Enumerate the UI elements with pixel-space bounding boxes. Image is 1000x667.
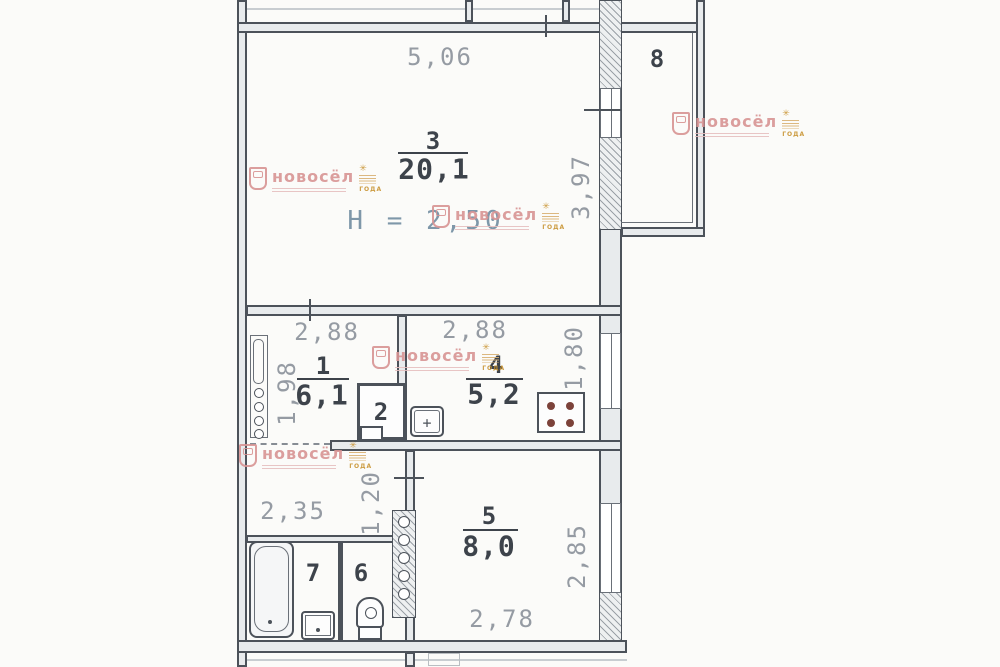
novosel-watermark: новосёл ✳ ГОДА [672,112,805,139]
balcony-wall-bottom [621,227,705,237]
kitchen-window [600,333,621,409]
washbasin-inner [305,615,331,636]
award-star-icon: ✳ [542,203,550,212]
novosel-brand-text: новосёл [262,444,344,463]
novosel-tagline-lines [272,188,346,194]
hall-closet-door [253,339,264,384]
washbasin-drain [316,628,320,632]
room7-number: 7 [306,559,320,587]
wall-stub-top-b [562,0,570,22]
door-leaf [360,426,383,441]
novosel-tagline-lines [395,367,469,373]
award-badge-text: ГОДА [542,224,565,231]
novosel-watermark: новосёл ✳ ГОДА [372,346,505,373]
award-star-icon: ✳ [349,442,357,451]
award-star-icon: ✳ [782,110,790,119]
vent-pipe-icon [398,552,410,564]
wall-mid-bottom [330,440,622,451]
room6-number: 6 [354,559,368,587]
dim-room3-right: 3,97 [567,154,595,220]
hall-closet-circle [254,402,264,412]
room1-number: 1 [316,352,330,380]
award-lines [359,175,376,184]
dim-kitchen-top: 2,88 [442,316,508,344]
wall-room5-left-stub [405,652,415,667]
novosel-shield-icon [249,167,267,190]
kitchen-sink-drain: + [421,415,433,431]
novosel-brand-text: новосёл [695,112,777,131]
stove-icon [537,392,585,433]
balcony-window [600,88,621,138]
award-lines [782,120,799,129]
room1-area: 6,1 [295,379,349,412]
novosel-wordmark: новосёл [262,444,344,471]
novosel-wordmark: новосёл [272,167,354,194]
dim-room5-bottom: 2,78 [469,605,535,633]
bathtub-inner [254,546,289,632]
novosel-award-badge: ✳ ГОДА [482,344,505,372]
floor-plan-canvas: + 3 20,1 H = 2,50 1 6,1 2 4 5,2 5 8,0 6 … [0,0,1000,667]
room5-area: 8,0 [462,530,516,563]
wall-right-hatch-lower [599,592,622,642]
dim-room1-top: 2,88 [294,318,360,346]
wall-corridor-room5 [405,450,415,513]
novosel-tagline-lines [262,465,336,471]
novosel-brand-text: новосёл [395,346,477,365]
novosel-watermark: новосёл ✳ ГОДА [239,444,372,471]
award-star-icon: ✳ [359,165,367,174]
dim-tick [584,109,622,111]
dim-kitchen-right: 1,80 [560,325,588,391]
novosel-tagline-lines [455,226,529,232]
toilet-base [358,626,382,640]
room3-area: 20,1 [398,153,469,186]
stove-burner [547,402,555,410]
award-lines [542,213,559,222]
dim-hall-width: 1,20 [357,470,385,536]
stove-burner [566,402,574,410]
novosel-award-badge: ✳ ГОДА [359,165,382,193]
bathtub-drain [268,620,272,624]
dim-room5-right: 2,85 [563,523,591,589]
wall-room3-bottom [246,305,622,316]
dim-room1-left: 1,98 [273,360,301,426]
dim-tick [394,477,424,479]
novosel-wordmark: новосёл [455,205,537,232]
vent-pipe-icon [398,516,410,528]
stove-burner [566,419,574,427]
wall-bottom [237,640,627,653]
wall-top [237,22,705,33]
hall-closet-circle [254,416,264,426]
vent-pipe-icon [398,588,410,600]
novosel-award-badge: ✳ ГОДА [349,442,372,470]
stove-burner [547,419,555,427]
novosel-shield-icon [239,444,257,467]
novosel-watermark: новосёл ✳ ГОДА [432,205,565,232]
building-line-top [237,8,603,10]
room5-window [600,503,621,593]
novosel-brand-text: новосёл [272,167,354,186]
novosel-award-badge: ✳ ГОДА [542,203,565,231]
novosel-brand-text: новосёл [455,205,537,224]
novosel-shield-icon [672,112,690,135]
room3-number: 3 [426,127,440,155]
wall-stub-top-a [465,0,473,22]
award-lines [482,354,499,363]
vent-pipe-icon [398,570,410,582]
toilet-seat-circle [365,607,377,619]
award-lines [349,452,366,461]
novosel-shield-icon [372,346,390,369]
award-badge-text: ГОДА [482,365,505,372]
award-badge-text: ГОДА [782,131,805,138]
wall-room5-left-lower [405,616,415,642]
award-star-icon: ✳ [482,344,490,353]
hall-closet-circle [254,429,264,439]
room2-number: 2 [374,398,388,426]
novosel-watermark: новосёл ✳ ГОДА [249,167,382,194]
lower-fragment [428,653,460,666]
dim-room3-top: 5,06 [407,43,473,71]
room5-number: 5 [482,502,496,530]
wall-bath-divider [338,543,343,641]
dim-corridor-width: 2,35 [260,497,326,525]
vent-pipe-icon [398,534,410,546]
wall-left [237,0,247,667]
novosel-wordmark: новосёл [695,112,777,139]
wall-right-hatch-upper [599,0,622,90]
award-badge-text: ГОДА [349,463,372,470]
novosel-award-badge: ✳ ГОДА [782,110,805,138]
hall-closet-circle [254,388,264,398]
novosel-shield-icon [432,205,450,228]
novosel-wordmark: новосёл [395,346,477,373]
wall-right-hatch-mid [599,136,622,230]
room4-area: 5,2 [467,378,521,411]
room8-number: 8 [650,45,664,73]
novosel-tagline-lines [695,133,769,139]
award-badge-text: ГОДА [359,186,382,193]
dim-tick [545,15,547,37]
